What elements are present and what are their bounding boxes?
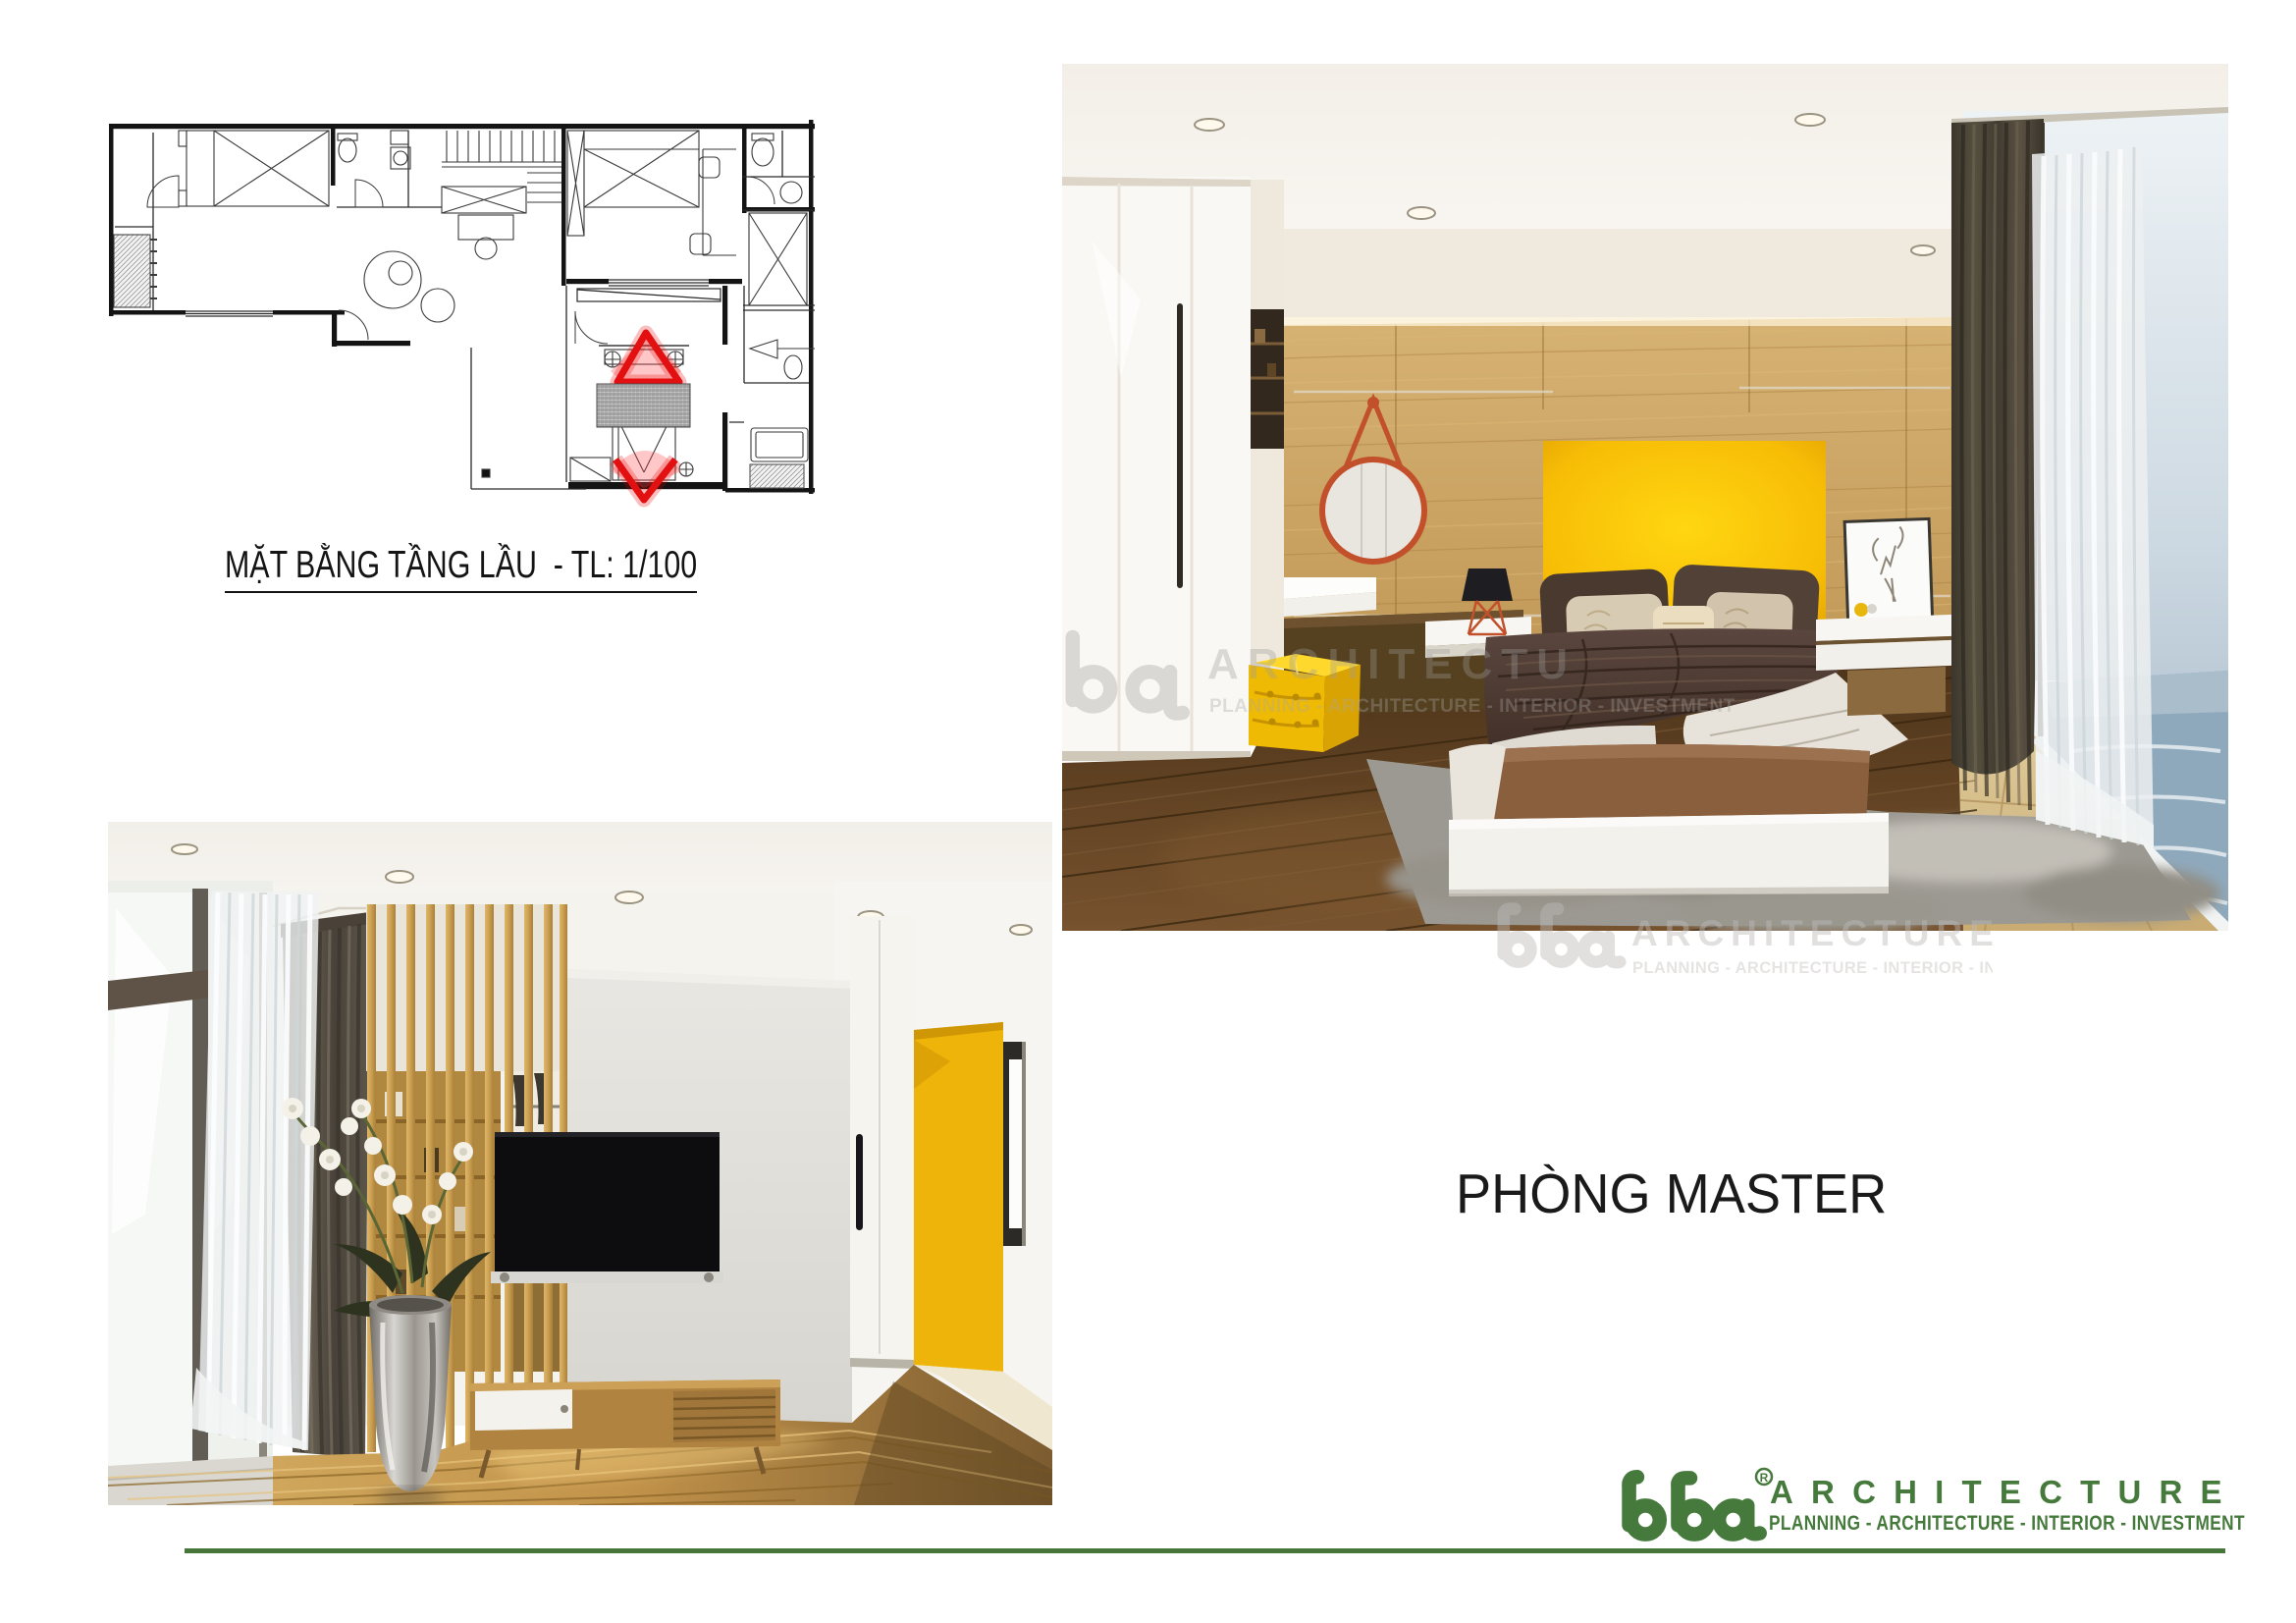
svg-text:PLANNING - ARCHITECTURE - INTE: PLANNING - ARCHITECTURE - INTERIOR - INV… (1769, 1513, 2245, 1536)
svg-text:ARCHITECTURE: ARCHITECTURE (1770, 1474, 2240, 1510)
svg-text:PLANNING - ARCHITECTURE - INTE: PLANNING - ARCHITECTURE - INTERIOR - INV… (1209, 696, 1735, 717)
svg-text:ARCHITECTURE: ARCHITECTURE (1631, 913, 1993, 953)
svg-text:R: R (1760, 1471, 1769, 1485)
svg-text:PLANNING - ARCHITECTURE - INTE: PLANNING - ARCHITECTURE - INTERIOR - INV… (1632, 959, 1993, 977)
svg-text:ARCHITECTU: ARCHITECTU (1207, 640, 1576, 688)
